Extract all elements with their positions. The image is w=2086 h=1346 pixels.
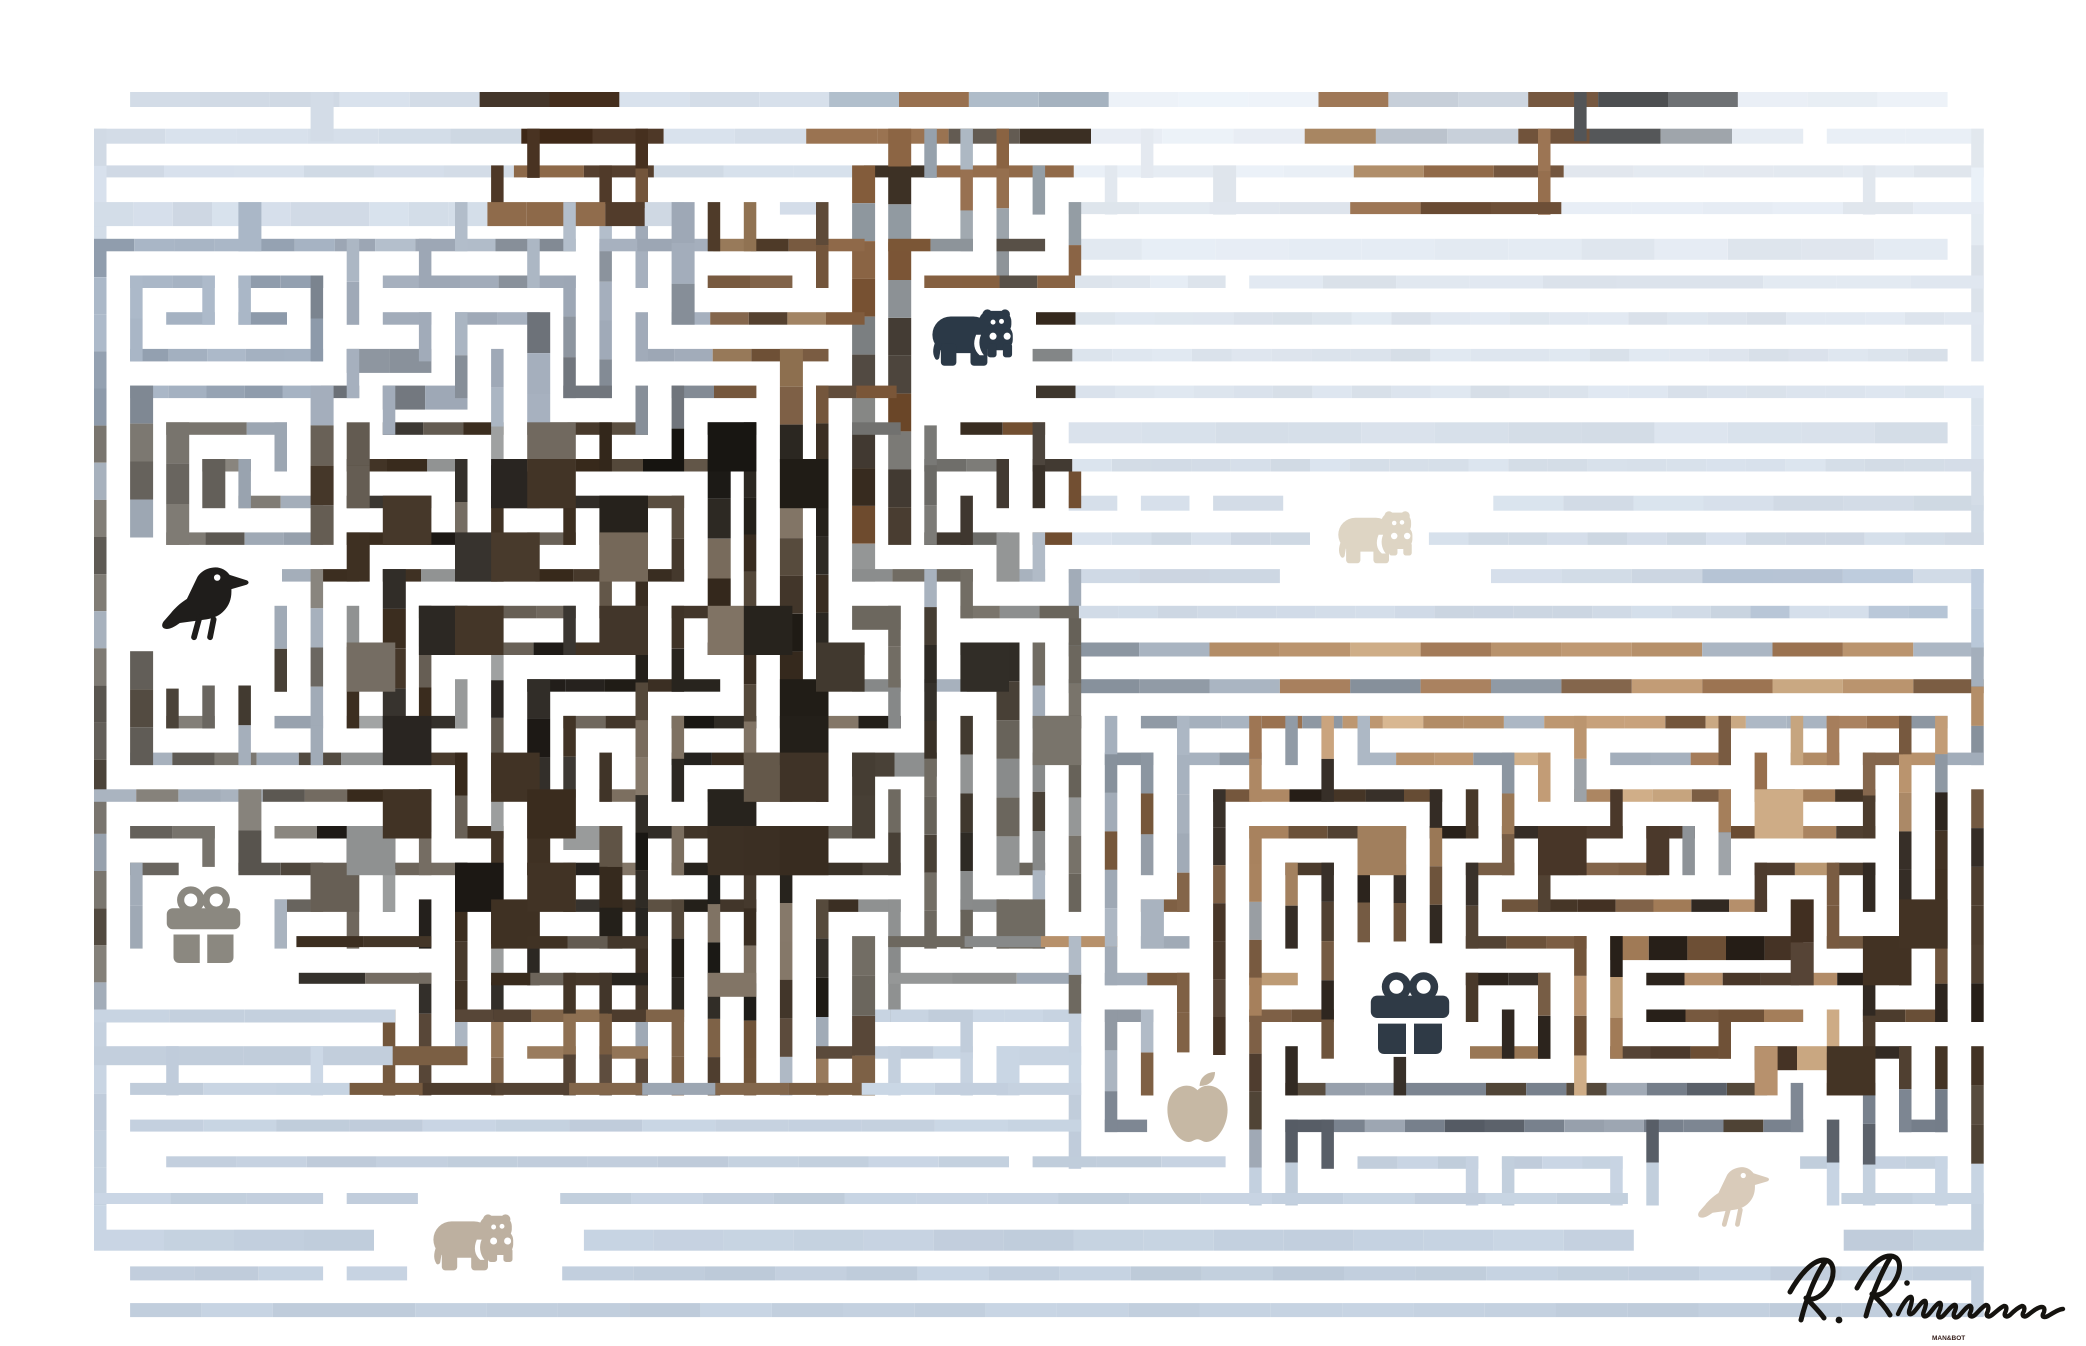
svg-text:MAN&BOT: MAN&BOT (1932, 1335, 1965, 1341)
